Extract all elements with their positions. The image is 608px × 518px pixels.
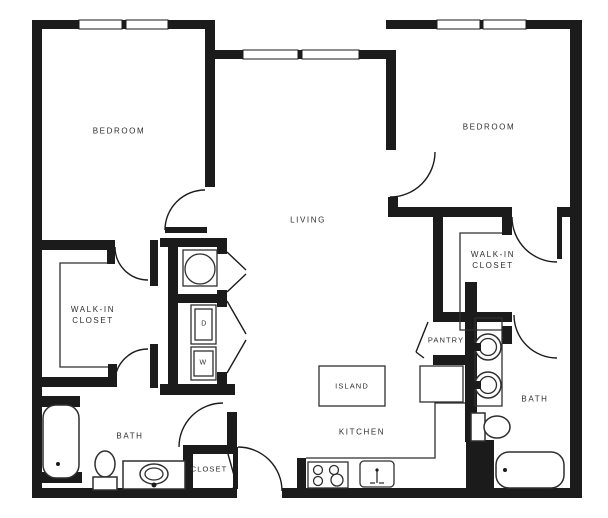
walk-in-closet-2-line2: CLOSET xyxy=(471,260,515,271)
room-label-closet: CLOSET xyxy=(191,465,228,474)
room-label-walk-in-closet-1: WALK-IN CLOSET xyxy=(71,304,115,326)
room-label-island: ISLAND xyxy=(335,382,369,391)
appliance-label-dryer: D xyxy=(201,321,207,328)
room-label-living: LIVING xyxy=(290,216,326,225)
range-stove-icon xyxy=(308,462,348,488)
window-icon xyxy=(243,50,298,59)
window-icon xyxy=(437,20,480,29)
room-label-bath-2: BATH xyxy=(521,395,548,404)
room-label-kitchen: KITCHEN xyxy=(339,428,385,437)
refrigerator-icon xyxy=(420,366,463,402)
room-label-bedroom-1: BEDROOM xyxy=(93,127,146,136)
kitchen-counter xyxy=(306,403,465,458)
water-heater-icon xyxy=(183,250,217,286)
window-icon xyxy=(126,20,168,29)
vanity-sink-icon xyxy=(123,461,185,489)
floor-plan: BEDROOM BEDROOM LIVING WALK-IN CLOSET WA… xyxy=(0,0,608,518)
window-icon xyxy=(79,20,122,29)
double-sink-vanity-icon xyxy=(474,318,502,406)
room-label-bedroom-2: BEDROOM xyxy=(463,123,516,132)
room-label-pantry: PANTRY xyxy=(428,336,464,345)
room-label-walk-in-closet-2: WALK-IN CLOSET xyxy=(471,249,515,271)
bathtub-icon xyxy=(496,452,564,488)
toilet-icon xyxy=(93,451,117,490)
walk-in-closet-2-line1: WALK-IN xyxy=(471,249,515,260)
kitchen-sink-icon xyxy=(360,461,394,487)
appliance-label-washer: W xyxy=(199,360,206,367)
bathtub-icon xyxy=(43,405,79,478)
floor-plan-drawing xyxy=(0,0,608,518)
window-icon xyxy=(302,50,359,59)
toilet-icon xyxy=(471,413,510,441)
room-label-bath-1: BATH xyxy=(116,432,143,441)
walk-in-closet-1-line1: WALK-IN xyxy=(71,304,115,315)
walk-in-closet-1-line2: CLOSET xyxy=(71,315,115,326)
window-icon xyxy=(483,20,526,29)
